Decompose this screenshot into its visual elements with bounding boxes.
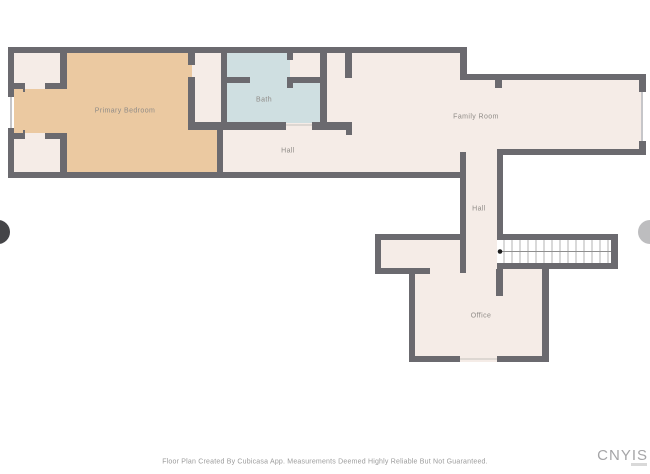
floor-plan-svg [0,0,650,474]
bath-door-threshold [286,124,312,126]
room-label-family-room: Family Room [453,114,499,121]
mls-watermark-subtext [631,463,647,466]
window-family-room [641,92,643,141]
room-label-office: Office [471,313,492,320]
floorplan-disclaimer: Floor Plan Created By Cubicasa App. Meas… [162,459,488,466]
stairs-start-dot [498,249,503,254]
mls-watermark: CNYIS [597,447,648,464]
room-label-primary-bedroom: Primary Bedroom [95,108,155,115]
office-door-threshold [460,358,497,360]
room-label-hall-lower: Hall [472,206,486,213]
room-label-bath: Bath [256,97,272,104]
bath-floor [227,53,320,123]
room-label-hall-upper: Hall [281,148,295,155]
photo-viewer: Primary Bedroom Bath Hall Family Room Ha… [0,0,650,474]
